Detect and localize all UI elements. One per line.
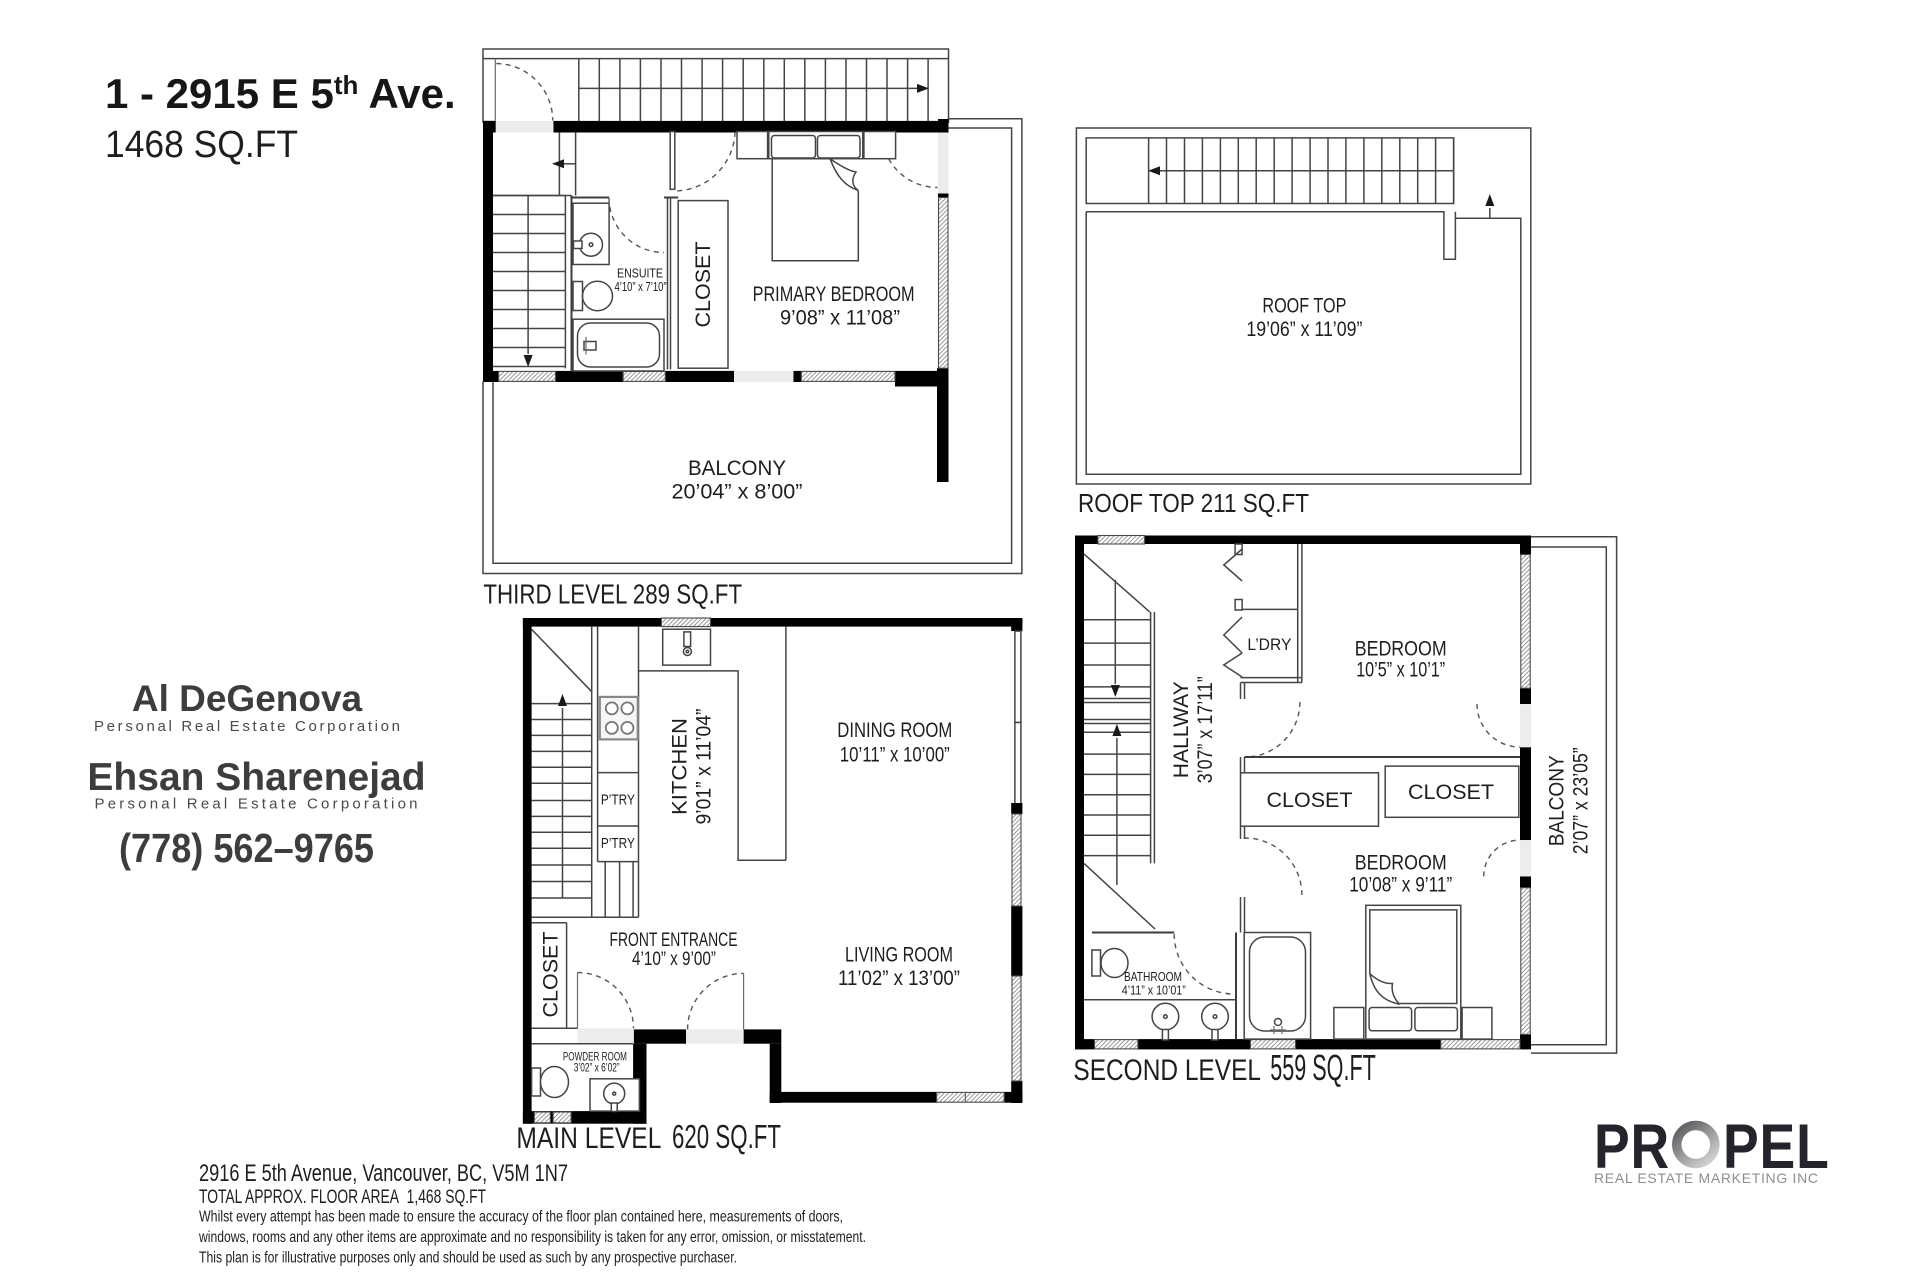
svg-text:2’07” x 23’05”: 2’07” x 23’05” xyxy=(1570,747,1593,854)
svg-text:1468 SQ.FT: 1468 SQ.FT xyxy=(105,124,298,166)
svg-text:10’11” x 10’00”: 10’11” x 10’00” xyxy=(840,744,950,767)
svg-text:FRONT ENTRANCE: FRONT ENTRANCE xyxy=(610,930,738,951)
svg-text:620 SQ.FT: 620 SQ.FT xyxy=(672,1119,781,1156)
svg-text:HALLWAY: HALLWAY xyxy=(1170,681,1193,778)
svg-text:19’06” x 11’09”: 19’06” x 11’09” xyxy=(1246,318,1362,341)
svg-text:L’DRY: L’DRY xyxy=(1247,635,1291,654)
svg-text:CLOSET: CLOSET xyxy=(692,241,715,327)
svg-text:REAL ESTATE MARKETING INC: REAL ESTATE MARKETING INC xyxy=(1594,1170,1818,1186)
svg-text:THIRD LEVEL 289 SQ.FT: THIRD LEVEL 289 SQ.FT xyxy=(483,579,742,610)
svg-text:4’11” x 10’01”: 4’11” x 10’01” xyxy=(1122,983,1186,998)
svg-text:3’07” x 17’11”: 3’07” x 17’11” xyxy=(1194,676,1217,783)
svg-text:2916 E 5th Avenue, Vancouver,: 2916 E 5th Avenue, Vancouver, BC, V5M 1N… xyxy=(199,1160,568,1187)
svg-text:1 - 2915 E 5th Ave.: 1 - 2915 E 5th Ave. xyxy=(105,70,456,117)
svg-text:TOTAL APPROX. FLOOR AREA 1,46: TOTAL APPROX. FLOOR AREA 1,468 SQ.FT xyxy=(199,1187,486,1208)
svg-text:11’02” x 13’00”: 11’02” x 13’00” xyxy=(838,967,960,990)
svg-text:(778) 562–9765: (778) 562–9765 xyxy=(119,825,374,871)
svg-text:DINING ROOM: DINING ROOM xyxy=(837,719,952,742)
svg-text:BEDROOM: BEDROOM xyxy=(1355,638,1447,661)
svg-text:3’02” x 6’02”: 3’02” x 6’02” xyxy=(574,1063,620,1075)
svg-text:MAIN LEVEL: MAIN LEVEL xyxy=(516,1122,661,1155)
svg-text:4’10” x 9’00”: 4’10” x 9’00” xyxy=(632,949,716,970)
svg-text:CLOSET: CLOSET xyxy=(1267,789,1353,812)
svg-text:559 SQ.FT: 559 SQ.FT xyxy=(1270,1047,1376,1088)
svg-text:ROOF TOP: ROOF TOP xyxy=(1262,295,1346,318)
svg-text:ENSUITE: ENSUITE xyxy=(617,267,663,281)
svg-text:CLOSET: CLOSET xyxy=(1408,781,1494,804)
svg-text:Al DeGenova: Al DeGenova xyxy=(132,678,363,719)
svg-text:Personal Real Estate Corporati: Personal Real Estate Corporation xyxy=(94,718,400,735)
svg-text:PRIMARY BEDROOM: PRIMARY BEDROOM xyxy=(753,283,915,306)
svg-text:BALCONY: BALCONY xyxy=(1546,755,1569,846)
svg-text:Whilst every attempt has been: Whilst every attempt has been made to en… xyxy=(199,1209,843,1226)
svg-text:POWDER ROOM: POWDER ROOM xyxy=(563,1050,627,1064)
svg-text:BALCONY: BALCONY xyxy=(688,457,786,480)
svg-text:BEDROOM: BEDROOM xyxy=(1355,852,1447,875)
svg-text:20’04” x 8’00”: 20’04” x 8’00” xyxy=(672,481,803,504)
svg-text:10’5” x 10’1”: 10’5” x 10’1” xyxy=(1356,659,1445,682)
svg-text:4’10” x 7’10”: 4’10” x 7’10” xyxy=(615,280,667,294)
svg-text:ROOF TOP 211 SQ.FT: ROOF TOP 211 SQ.FT xyxy=(1078,488,1309,518)
svg-text:P’TRY: P’TRY xyxy=(601,793,635,809)
svg-text:9’01” x 11’04”: 9’01” x 11’04” xyxy=(693,708,716,824)
svg-text:9’08” x 11’08”: 9’08” x 11’08” xyxy=(780,307,900,330)
svg-text:LIVING ROOM: LIVING ROOM xyxy=(845,944,953,967)
svg-text:KITCHEN: KITCHEN xyxy=(669,718,692,815)
svg-text:This plan is for illustrative: This plan is for illustrative purposes o… xyxy=(199,1250,737,1267)
svg-text:P’TRY: P’TRY xyxy=(601,836,635,852)
svg-text:CLOSET: CLOSET xyxy=(540,931,563,1017)
svg-text:10’08” x 9’11”: 10’08” x 9’11” xyxy=(1349,874,1452,897)
svg-text:windows, rooms and any other i: windows, rooms and any other items are a… xyxy=(198,1229,866,1246)
svg-text:SECOND LEVEL: SECOND LEVEL xyxy=(1073,1054,1261,1087)
svg-text:Ehsan Sharenejad: Ehsan Sharenejad xyxy=(87,756,425,799)
